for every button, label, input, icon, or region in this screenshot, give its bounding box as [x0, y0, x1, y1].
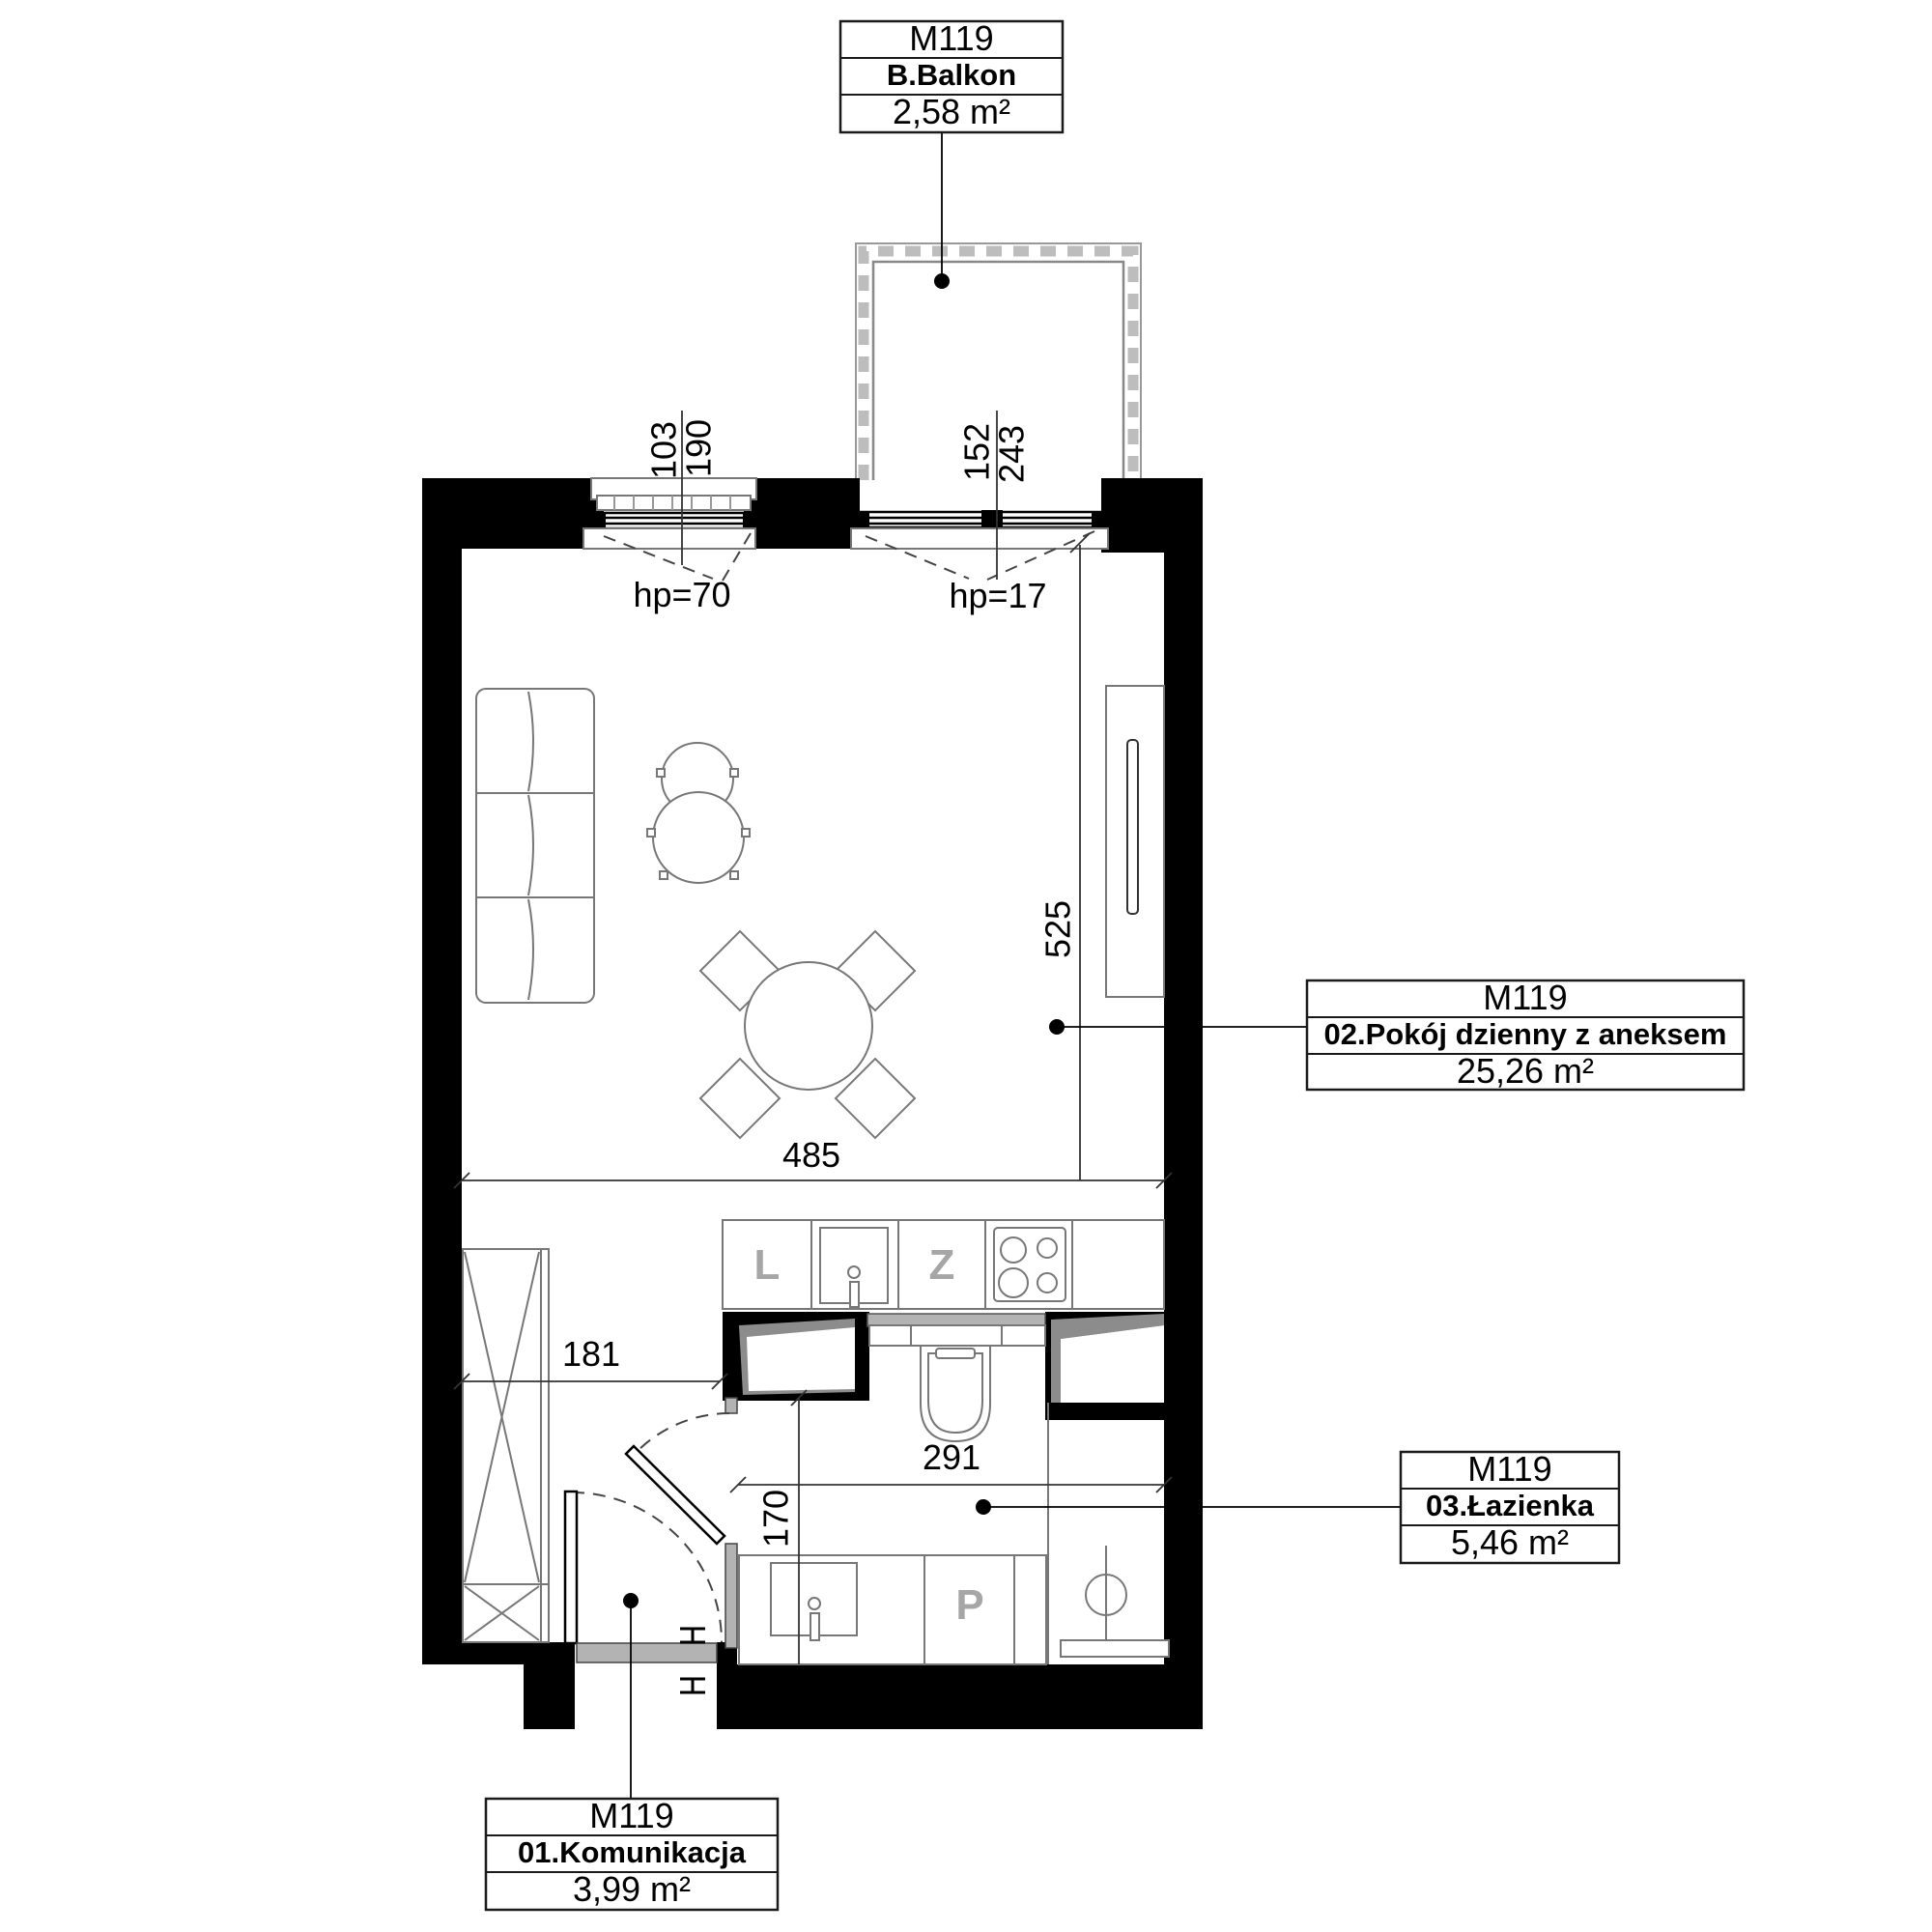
living-window [583, 478, 756, 581]
wall-bottom [717, 1664, 1203, 1729]
balcony-door-window [851, 510, 1108, 580]
bathroom-area: 5,46 m² [1451, 1522, 1569, 1562]
wardrobe-outline [463, 1249, 549, 1642]
entrance-hinge-mark [680, 1679, 705, 1692]
kitchen-sink [820, 1228, 888, 1307]
balkon-room-name: B.Balkon [887, 58, 1016, 92]
entrance-door-leaf [565, 1492, 577, 1643]
coffee-tables [647, 743, 750, 883]
hallway-area: 3,99 m² [573, 1869, 691, 1909]
table-tab [647, 829, 655, 837]
label-box-bathroom: M119 03.Łazienka 5,46 m² [1401, 1449, 1619, 1563]
table-tab [730, 871, 738, 879]
label-box-living: M119 02.Pokój dzienny z aneksem 25,26 m² [1307, 978, 1744, 1091]
balcony-window-jamb-left [858, 512, 869, 527]
dim-window1-height: 190 [679, 419, 719, 477]
wall-left [422, 478, 462, 1642]
balkon-area: 2,58 m² [893, 92, 1010, 131]
dishwasher-symbol: Z [929, 1241, 955, 1289]
window-frame [594, 513, 754, 528]
tv-screen [1127, 740, 1138, 914]
entrance-hinge-mark [680, 1629, 705, 1642]
toilet-lid [936, 1349, 975, 1358]
entrance-threshold [577, 1643, 717, 1662]
shaft-right-void [1061, 1325, 1164, 1403]
washer-symbol: P [955, 1581, 983, 1629]
leader-dot-bathroom [976, 1499, 991, 1515]
floor-plan-page: L Z P [0, 0, 1932, 1932]
kitchen-counter: L Z [723, 1220, 1164, 1309]
dining-table [745, 962, 872, 1090]
dim-room-width: 485 [782, 1135, 840, 1175]
window-hatch-band [597, 496, 751, 510]
dim-balcony-door-height: 243 [992, 425, 1032, 483]
leader-dot-balkon [934, 273, 950, 289]
bathroom-door-jamb-top [725, 1398, 737, 1413]
hallway-unit: M119 [589, 1796, 673, 1835]
bathroom-room-name: 03.Łazienka [1426, 1489, 1595, 1522]
shaft-left-void [747, 1327, 855, 1391]
wall-bottom-left-foot [524, 1642, 575, 1729]
floor-plan-drawing: L Z P [0, 0, 1932, 1932]
leader-dot-living [1049, 1019, 1065, 1035]
sofa-outline [476, 689, 594, 1003]
living-room-name: 02.Pokój dzienny z aneksem [1324, 1017, 1727, 1051]
sofa [476, 689, 594, 1003]
toilet-cistern-shelf [869, 1325, 1045, 1346]
dim-window1-width: 103 [644, 421, 684, 479]
fridge-symbol: L [754, 1241, 781, 1289]
living-area: 25,26 m² [1457, 1051, 1594, 1091]
living-unit: M119 [1483, 978, 1567, 1017]
bathroom-door-leaf [626, 1446, 724, 1544]
sink-faucet-head [848, 1266, 860, 1278]
bathroom-door-swing [637, 1413, 729, 1452]
washbasin-faucet-stem [810, 1613, 819, 1640]
label-box-balkon: M119 B.Balkon 2,58 m² [840, 18, 1063, 132]
sink-faucet-stem [850, 1282, 859, 1307]
dim-bath-width: 291 [923, 1437, 980, 1477]
balkon-unit: M119 [909, 18, 993, 58]
window-jamb-right [743, 513, 754, 528]
dim-balcony-door-width: 152 [957, 423, 997, 481]
dim-room-depth: 525 [1038, 900, 1078, 958]
table-tab [657, 769, 665, 777]
table-tab [660, 871, 668, 879]
doors [565, 1413, 729, 1692]
balcony-window-mullion [981, 510, 1003, 529]
wall-top-right-corner [1101, 478, 1203, 553]
wall-top-middle [744, 478, 860, 549]
bathroom-door-jamb-bottom [725, 1544, 737, 1648]
label-box-hallway: M119 01.Komunikacja 3,99 m² [486, 1796, 778, 1910]
wardrobe [463, 1249, 549, 1642]
dining-set [700, 931, 915, 1138]
window-jamb-left [594, 513, 606, 528]
shower-channel [1061, 1640, 1169, 1657]
dim-hall-width: 181 [562, 1334, 620, 1374]
balcony-window-frame [858, 512, 1103, 527]
bathroom-unit: M119 [1467, 1449, 1551, 1489]
tv-cabinet [1106, 686, 1164, 997]
table-tab [730, 769, 738, 777]
table-tab [742, 829, 750, 837]
dim-window1-hp: hp=70 [633, 575, 730, 614]
dim-balcony-door-hp: hp=17 [949, 576, 1046, 615]
dim-bath-depth: 170 [756, 1490, 796, 1548]
leader-dot-hallway [623, 1593, 639, 1608]
stove [994, 1228, 1065, 1301]
wall-right [1164, 551, 1203, 1729]
coffee-table-large [653, 792, 744, 883]
washbasin-faucet-head [809, 1598, 820, 1609]
hallway-room-name: 01.Komunikacja [518, 1835, 747, 1869]
balcony-window-jamb-right [1092, 512, 1103, 527]
toilet-bowl [928, 1353, 982, 1433]
